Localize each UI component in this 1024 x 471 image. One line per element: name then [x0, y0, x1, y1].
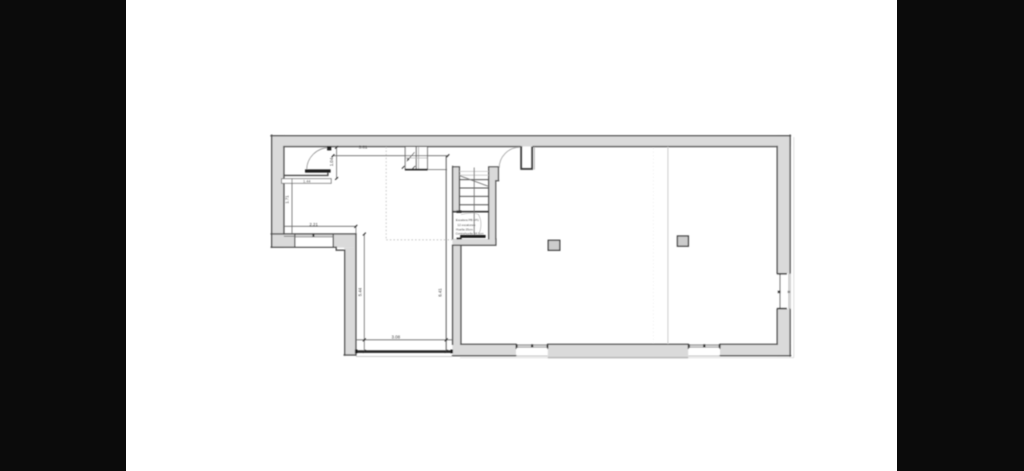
svg-text:3.08: 3.08 [392, 335, 401, 340]
svg-text:1.04: 1.04 [329, 157, 334, 166]
svg-text:1.71: 1.71 [285, 195, 290, 204]
svg-text:6.41: 6.41 [437, 288, 442, 297]
svg-text:5.44: 5.44 [358, 287, 363, 296]
svg-text:Escalera PB i-P1: Escalera PB i-P1 [456, 218, 479, 222]
svg-text:Huella 25cm: Huella 25cm [456, 227, 473, 231]
svg-text:1.44: 1.44 [303, 179, 311, 184]
svg-text:2.21: 2.21 [309, 222, 318, 227]
svg-text:3.81: 3.81 [359, 145, 368, 150]
